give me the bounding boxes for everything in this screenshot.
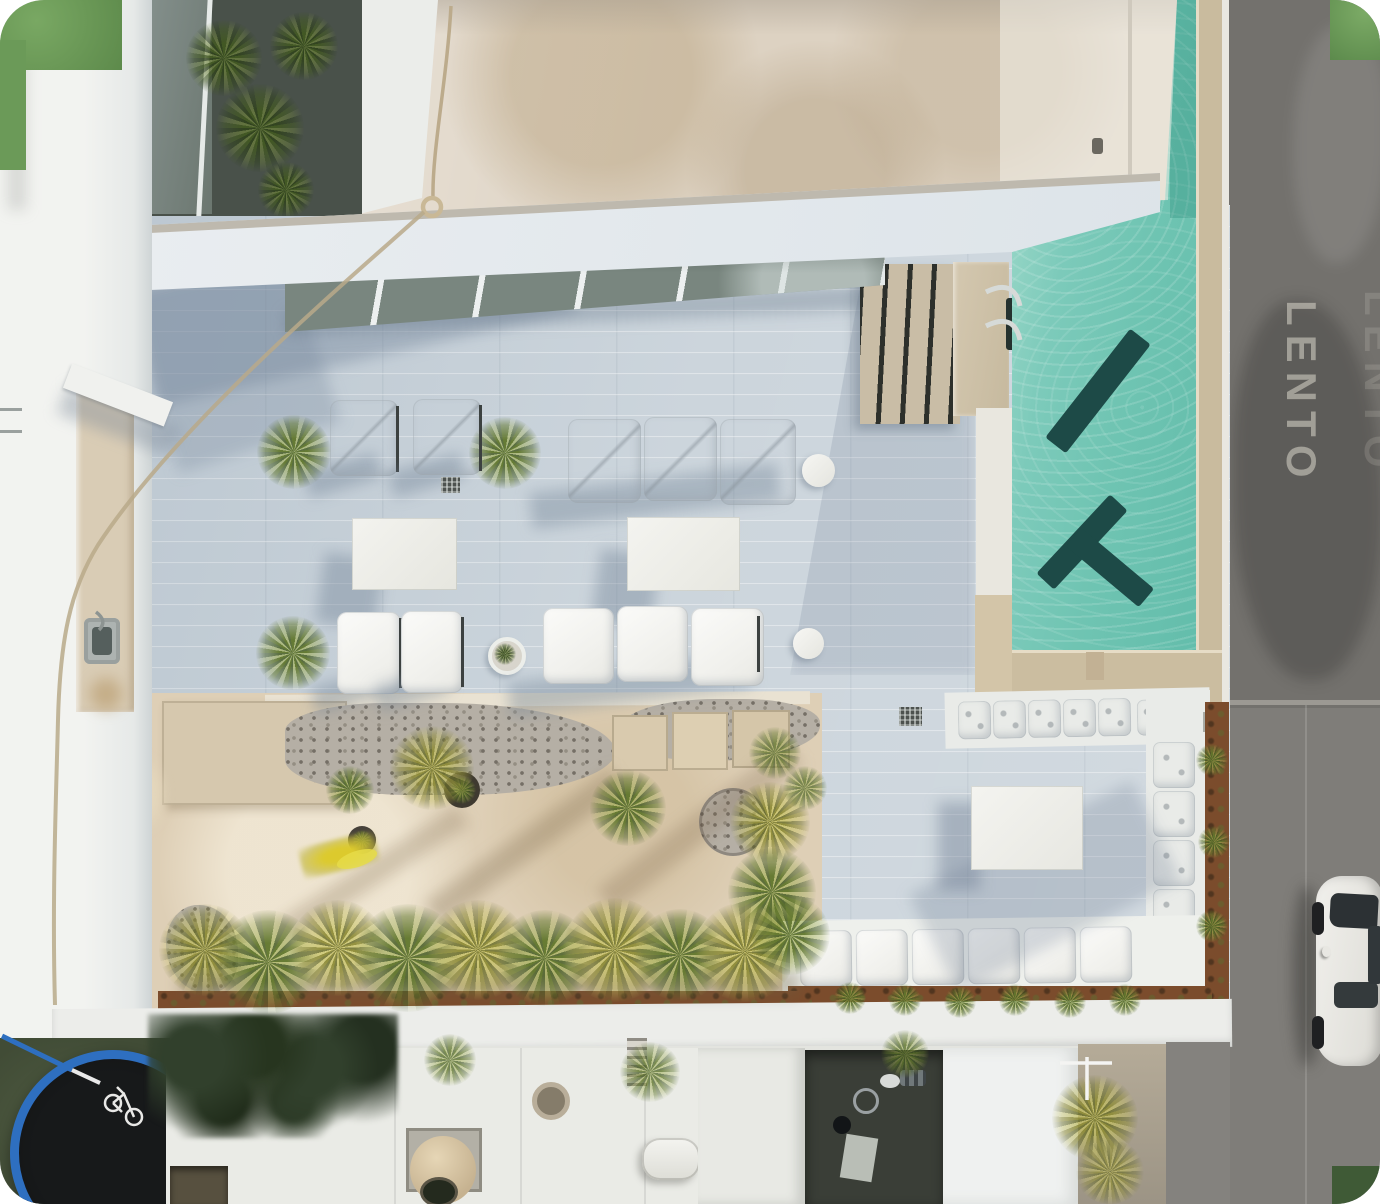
sofa-cushion: [617, 606, 688, 682]
road-marking-lento-2: LENTO: [1353, 290, 1380, 420]
roof-drain-ring: [532, 1082, 570, 1120]
corridor-palm-3: [270, 12, 338, 80]
coffee-table-1: [352, 518, 457, 590]
grass-edge-left: [0, 40, 26, 170]
sofa-cushion: [543, 608, 614, 684]
sofa-top: [568, 417, 796, 505]
water-tank: [642, 1138, 700, 1180]
dry-grass-tuft-lower: [1075, 1140, 1145, 1204]
pool-outer-wall: [1222, 0, 1229, 706]
lower-wall-mid: [698, 1048, 805, 1204]
ledge-tuft-2: [620, 1042, 680, 1102]
armchair-4-frame: [461, 617, 464, 687]
grass-corner-bottom-right: [1332, 1166, 1380, 1204]
palm-row-10: [750, 895, 830, 975]
planter-pot-plant: [494, 643, 516, 665]
counter-sink: [84, 618, 120, 664]
sofa-bottom: [543, 606, 765, 686]
road-marking-text-2: LENTO: [1356, 290, 1380, 477]
bench-cushion: [1098, 698, 1132, 737]
pool-coping-right: [1196, 0, 1224, 706]
sofa-bottom-frame: [757, 616, 760, 672]
pool-side-sand-block: [975, 595, 1015, 701]
armchair-2-frame: [479, 405, 482, 471]
street-tire-track: [1293, 24, 1380, 264]
alley-asphalt: [1166, 1042, 1230, 1204]
wall-pipe-1: [0, 408, 22, 411]
bench-cushion: [1153, 791, 1195, 837]
floor-drain-grate-2: [899, 707, 922, 726]
paver-square-2: [672, 712, 728, 770]
side-table-round-1: [802, 454, 835, 487]
bench-cushion: [856, 929, 909, 986]
bench-cushion: [1153, 742, 1195, 788]
bench-cushion: [1063, 699, 1097, 738]
parked-car: [1316, 876, 1380, 1066]
garden-palm-small: [326, 766, 374, 814]
stored-pot: [833, 1116, 851, 1134]
armchair-1-frame: [396, 406, 399, 472]
pool-side-wall: [976, 408, 1014, 604]
stored-ring: [853, 1088, 879, 1114]
armchair-1: [330, 400, 398, 476]
pool-coping-notch: [1086, 652, 1104, 680]
planter-tuft-6: [1109, 984, 1141, 1016]
ledge-tuft-1: [424, 1034, 476, 1086]
floor-drain-grate-1: [441, 477, 460, 493]
street-joint-line: [1227, 700, 1380, 705]
planter-tuft-right-1: [1196, 744, 1228, 776]
planter-tuft-right-2: [1198, 826, 1230, 858]
slat-deck: [860, 264, 960, 424]
car-wheel-rear: [1312, 1016, 1324, 1049]
roof-vent: [1092, 138, 1103, 154]
palm-corridor: [136, 0, 362, 216]
stored-board: [840, 1134, 878, 1182]
storage-courtyard: [805, 1050, 945, 1204]
planter-tuft-5: [1054, 986, 1086, 1018]
bench-coffee-table: [971, 786, 1083, 870]
potted-palm-3: [256, 616, 330, 690]
road-marking-text: LENTO: [1278, 300, 1325, 487]
armchair-2: [413, 399, 481, 475]
bench-cushion: [1080, 926, 1133, 983]
car-windshield: [1329, 893, 1379, 929]
car-side-glass: [1368, 926, 1380, 984]
planter-tuft-4: [999, 984, 1031, 1016]
paver-grass-2: [783, 766, 827, 810]
garden-palm-large: [390, 726, 474, 810]
planter-tuft-right-3: [1196, 910, 1228, 942]
bench-cushion: [958, 701, 992, 740]
planter-tuft-1: [834, 982, 866, 1014]
side-table-round-2: [793, 628, 824, 659]
coffee-table-2: [627, 517, 740, 591]
grass-corner-top-right: [1330, 0, 1380, 60]
planter-tuft-2: [889, 984, 921, 1016]
wall-pipe-2: [0, 430, 22, 433]
car-wheel-front: [1312, 902, 1324, 935]
sink-basin: [92, 627, 112, 655]
paver-square-1: [612, 715, 668, 771]
aerial-photo: LENTO LENTO: [0, 0, 1380, 1204]
corridor-palm-2: [216, 84, 304, 172]
roof-parapet-groove: [1128, 0, 1132, 203]
stair-pit: [170, 1166, 228, 1204]
sofa-cushion: [644, 417, 717, 501]
car-mirror: [1322, 946, 1331, 957]
ledge-tuft-3: [881, 1030, 929, 1078]
planter-tuft-3: [944, 986, 976, 1018]
roof-joint-2: [520, 1048, 522, 1204]
counter-stain: [90, 678, 122, 710]
road-marking-lento: LENTO: [1275, 300, 1325, 430]
pool-edge-block: [953, 262, 1009, 416]
bench-cushion: [993, 700, 1027, 739]
garden-palm-mid: [590, 770, 666, 846]
sofa-cushion: [691, 608, 764, 686]
armchair-4: [401, 611, 463, 693]
sofa-cushion: [568, 419, 641, 503]
corridor-palm-4: [258, 162, 314, 216]
street-asphalt: LENTO LENTO: [1227, 0, 1380, 1204]
car-rear-window: [1334, 982, 1378, 1008]
tree-canopy: [148, 1014, 398, 1138]
dome-opening: [423, 1180, 455, 1204]
bench-cushion: [1028, 699, 1062, 738]
sofa-cushion: [720, 419, 796, 505]
